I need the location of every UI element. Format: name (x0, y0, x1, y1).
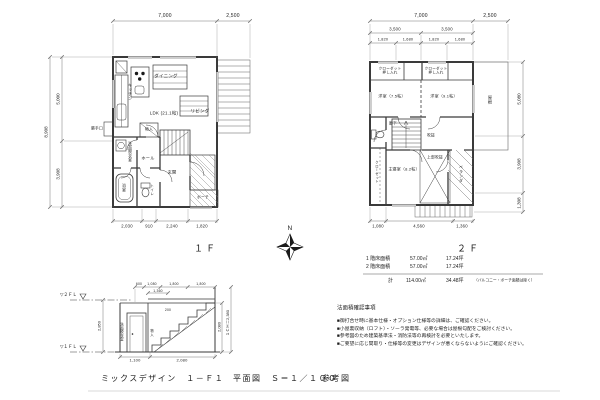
dim-2f-mid-1: 3,500 (389, 26, 400, 31)
stair-dim-top2: 1,360 (153, 288, 163, 292)
interior-walls-1f (113, 137, 190, 207)
stair-dim-top-1: 600 (136, 282, 142, 286)
stair-fl2-label: ▽２ＦＬ (60, 292, 77, 298)
room-dining-label: ダイニング (154, 73, 178, 78)
room-kitchen-label: キッチン (127, 83, 133, 101)
dim-1f-bottom-3: 2,240 (166, 223, 177, 228)
stair-dim-top-4: 1,800 (196, 282, 206, 286)
doors-2f (374, 117, 448, 172)
dim-1f-top-deck: 2,500 (226, 13, 240, 19)
dimension-lines (48, 19, 525, 223)
room-bath-label: 浴室 (121, 184, 127, 193)
deck-1f (217, 60, 250, 133)
dim-2f-small-1: 1,820 (378, 37, 389, 42)
room-hall-label: ホール (141, 155, 154, 160)
dim-2f-small-4: 1,680 (455, 37, 466, 42)
room-roof-label: 屋根 (487, 95, 493, 104)
stair-section (70, 285, 233, 359)
stair-fl1-label: ▽１ＦＬ (60, 344, 77, 350)
area-row2-name: 2 階床面積 (366, 264, 390, 270)
stair-room-label: 洗面脱衣室 (120, 323, 125, 342)
stair-dim-top-3: 1,800 (169, 282, 179, 286)
title-project: ミックスデザイン １－Ｆ１ (101, 374, 224, 384)
dim-1f-top-total: 7,000 (158, 13, 172, 19)
drawing-canvas (0, 0, 600, 400)
dim-2f-top-roof: 2,500 (483, 13, 497, 19)
room-veranda-label: ベランダ (458, 165, 464, 183)
room-closet-side-label: クローゼット (375, 161, 380, 184)
room-living-label: リビング (191, 108, 210, 113)
dim-2f-bottom-1: 1,080 (372, 223, 383, 228)
fixtures-1f (115, 61, 208, 202)
dim-1f-bottom-2: 910 (145, 223, 153, 228)
area-row1-tsubo: 17.24坪 (446, 256, 464, 262)
stair-dim-bottom-2: 2,080 (176, 359, 187, 364)
stair-tread-note: 200 (165, 308, 171, 312)
compass-rose (277, 234, 303, 260)
room-closet1-label: クローゼット 押し入れ (379, 67, 402, 76)
room-porch-label: ポーチ (197, 196, 209, 201)
room-ldk-label: LDK (21.1帖) (150, 110, 178, 115)
room-master-label: 主寝室（8.2帖） (388, 168, 419, 173)
room-entrance-label: 玄関 (168, 169, 177, 174)
notes-item-4: ■ご要望に応じ間取り・仕様等の変更はデザインが悪くならないようにご確認ください。 (337, 342, 527, 348)
area-row1-m2: 57.00㎡ (410, 256, 428, 262)
dim-2f-small-3: 1,820 (429, 37, 440, 42)
windows-2f (369, 61, 475, 207)
notes-heading: 法面積確認事項 (337, 306, 376, 313)
dim-2f-top-total: 7,000 (414, 13, 428, 19)
stair-treads (152, 303, 215, 352)
dim-1f-left-upper: 5,000 (56, 93, 61, 104)
notes-item-1: ■御打合せ時に基本仕様・オプション仕様等の詳細は、ご確認ください。 (337, 319, 493, 325)
interior-walls-2f (370, 62, 473, 205)
room-hall-2f-label: 廊下 (389, 122, 397, 127)
area-row1-name: 1 階床面積 (366, 256, 390, 262)
floor-plan-2f (369, 61, 508, 217)
stair-dim-right-outer: １ＣＨ＝2,380 (225, 310, 231, 336)
floor2-title: ２Ｆ (457, 244, 481, 255)
area-total-tsubo: 34.48坪 (446, 278, 464, 284)
lower-roof-2f (415, 205, 472, 217)
room-wash-label: 洗面脱衣室 (129, 142, 134, 163)
room-toilet-1f-label: トイレ (151, 184, 156, 196)
dim-1f-bottom-4: 1,820 (196, 223, 207, 228)
stair-dim-right-inner: 2,080 (217, 322, 222, 332)
room-void-note-label: 吹抜 (427, 134, 435, 139)
backdoor-step-1f (104, 122, 113, 136)
notes-item-2: ■小屋裏収納（ロフト）・ソーラ発電等、必要な場合は屋根勾配をご検討ください。 (337, 327, 515, 333)
dim-1f-left-lower: 3,908 (56, 168, 61, 179)
dim-1f-left-total: 8,908 (44, 126, 49, 137)
room-backdoor-label: 勝手口 (91, 127, 103, 132)
floor-plan-sheet: 7,000 2,500 8,908 5,000 3,908 2,030 910 … (0, 0, 600, 400)
dim-2f-right-1: 5,080 (517, 93, 522, 104)
dim-2f-bottom-2: 4,560 (413, 223, 424, 228)
area-row2-tsubo: 17.24坪 (446, 264, 464, 270)
room-bed1-label: 洋室（7.5帖） (378, 95, 405, 100)
title-doctype: 参考図 (322, 374, 351, 384)
area-total-m2: 114.00㎡ (406, 278, 426, 284)
room-bed2-label: 洋室（9.1帖） (430, 95, 457, 100)
stairs-1f (160, 130, 190, 155)
stair-dim-top-2: 1,080 (147, 282, 157, 286)
floor1-title: １Ｆ (194, 244, 218, 255)
compass-north-label: N (288, 225, 293, 233)
area-total-note: （バルコニー・ポーチ面積は除く） (474, 279, 535, 284)
dim-1f-bottom-1: 2,030 (121, 223, 132, 228)
dim-2f-small-2: 1,680 (403, 37, 414, 42)
stair-dim-left: 2,850 (97, 321, 102, 331)
room-closet-1f-label: 物入 (145, 128, 153, 133)
notes-item-3: ■参考図のため建築基準法・消防法等の再検討を必要といたします。 (337, 334, 483, 340)
stair-dim-bottom-1: 1,100 (129, 359, 140, 364)
stair-storage-label: 物入 (150, 329, 155, 337)
dim-2f-right-2: 3,908 (517, 158, 522, 169)
room-closet2-label: クローゼット 押し入れ (425, 67, 448, 76)
outer-wall-1f (113, 57, 217, 207)
dim-2f-right-3: 1,308 (517, 197, 522, 208)
area-total-name: 計 (388, 278, 393, 284)
room-void-upper-label: 上部吹抜 (427, 156, 443, 161)
dim-2f-bottom-3: 1,360 (456, 223, 467, 228)
roof-2f (473, 62, 508, 150)
dim-2f-mid-2: 3,500 (441, 26, 452, 31)
area-row2-m2: 57.00㎡ (410, 264, 428, 270)
